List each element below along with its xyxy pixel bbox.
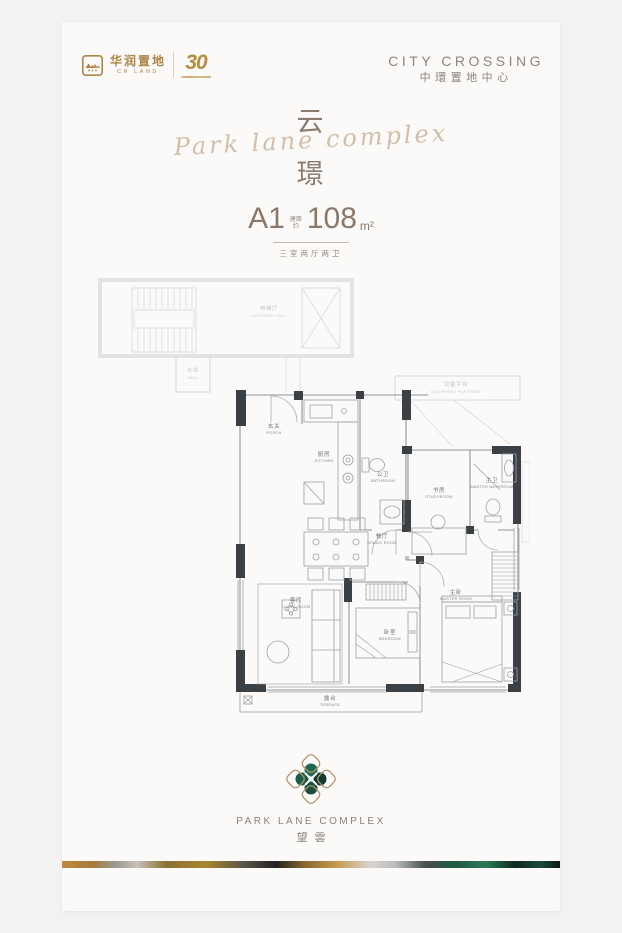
hero-char-top: 云 (62, 100, 560, 139)
master-furniture (442, 552, 518, 682)
svg-text:BEDROOM: BEDROOM (379, 637, 401, 641)
brand-block: 华润置地 CR LAND 30 (82, 52, 211, 78)
room-label-bathroom: 公卫 (377, 471, 389, 478)
project-block: CITY CROSSING 中環置地中心 (388, 54, 544, 84)
anniversary-number: 30 (185, 52, 206, 73)
unit-area-unit: m² (360, 220, 374, 232)
room-label-kitchen: 厨房 (318, 450, 330, 458)
unit-area-label-bottom: 约 (293, 224, 299, 231)
svg-text:TERRACE: TERRACE (320, 703, 340, 707)
anniversary-logo: 30 (181, 52, 211, 78)
room-label-living: 客厅 (290, 596, 302, 604)
room-labels: 玄关 PORCH 厨房 KITCHEN 公卫 BATHROOM 书房 STUDY… (266, 422, 513, 707)
marble-strip (62, 861, 560, 868)
unit-area-label-top: 建面 (290, 217, 302, 224)
unit-area-label: 建面 约 (290, 217, 302, 231)
floor-plan: 电梯厅 ELEVATOR HALL 水井 WELL 设备平台 EQUIPMENT… (90, 266, 530, 728)
svg-text:ELEVATOR HALL: ELEVATOR HALL (252, 314, 286, 318)
unit-spec-divider (273, 242, 349, 243)
park-lane-emblem (285, 753, 337, 805)
bathroom-fixtures (362, 458, 404, 524)
room-label-master-bath: 主卫 (486, 476, 498, 484)
brand-name-zh: 华润置地 (110, 55, 166, 67)
windows (238, 528, 519, 692)
poster-card: 华润置地 CR LAND 30 CITY CROSSING 中環置地中心 Par… (62, 22, 560, 911)
dining-table (304, 518, 368, 580)
room-label-study: 书房 (433, 486, 445, 494)
unit-spec: A1 建面 约 108 m² 三室两厅两卫 (62, 204, 560, 259)
unit-area-value: 108 (307, 204, 357, 234)
svg-text:PORCH: PORCH (266, 431, 281, 435)
furniture (240, 400, 518, 712)
svg-text:KITCHEN: KITCHEN (315, 459, 334, 463)
brand-divider (173, 52, 174, 78)
room-label: 设备平台 (444, 380, 468, 388)
svg-text:MASTER ROOM: MASTER ROOM (440, 597, 472, 601)
brand-names: 华润置地 CR LAND (110, 55, 166, 76)
common-labels: 电梯厅 ELEVATOR HALL 水井 WELL (187, 304, 286, 380)
svg-text:EQUIPMENT PLATFORM: EQUIPMENT PLATFORM (431, 390, 480, 394)
svg-text:LIVING ROOM: LIVING ROOM (282, 605, 311, 609)
hero-char-bottom: 璟 (62, 152, 560, 191)
project-name-en: CITY CROSSING (388, 54, 544, 68)
footer-brand-en: PARK LANE COMPLEX (62, 817, 560, 827)
study-desk (412, 515, 466, 554)
room-label: 水井 (187, 366, 199, 374)
footer-block: PARK LANE COMPLEX 望雲 (62, 753, 560, 844)
footer-brand-zh: 望雲 (62, 833, 560, 844)
svg-text:DINING ROOM: DINING ROOM (367, 541, 396, 545)
common-area: 电梯厅 ELEVATOR HALL 水井 WELL (100, 280, 352, 392)
room-label: 电梯厅 (260, 304, 278, 312)
room-label-terrace: 露台 (324, 694, 336, 702)
unit-layout-desc: 三室两厅两卫 (62, 248, 560, 259)
unit-spec-main: A1 建面 约 108 m² (62, 204, 560, 234)
unit-code: A1 (248, 204, 285, 234)
svg-text:STUDYROOM: STUDYROOM (425, 495, 452, 499)
crland-logo-icon (82, 55, 103, 76)
svg-text:WELL: WELL (187, 376, 199, 380)
hero-title: Park lane complex 云 璟 (62, 98, 560, 198)
room-label-porch: 玄关 (268, 422, 280, 430)
terrace-outline (240, 692, 422, 712)
anniversary-microtext (181, 76, 211, 78)
svg-text:MASTER BATHROOM: MASTER BATHROOM (470, 485, 513, 489)
well-shaft (176, 356, 210, 392)
room-label-master: 主卧 (450, 588, 462, 596)
room-label-bedroom: 卧室 (384, 628, 396, 636)
brand-name-en: CR LAND (117, 70, 159, 76)
equipment-platform: 设备平台 EQUIPMENT PLATFORM (395, 376, 530, 542)
project-name-zh: 中環置地中心 (388, 73, 544, 84)
bedroom-furniture (356, 584, 420, 658)
svg-text:BATHROOM: BATHROOM (371, 479, 395, 483)
room-label-dining: 餐厅 (376, 532, 388, 540)
